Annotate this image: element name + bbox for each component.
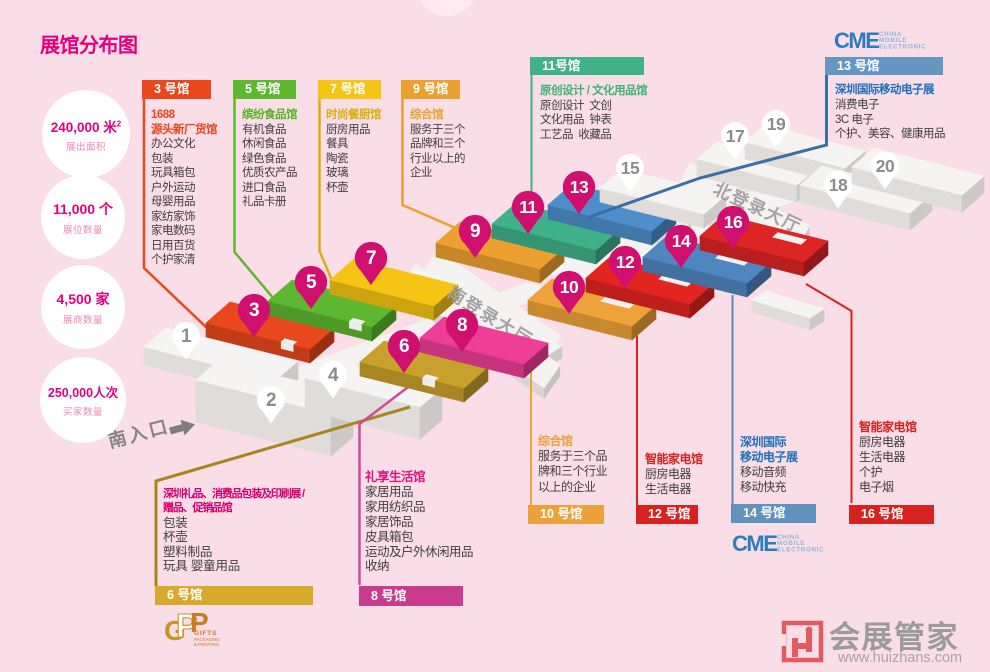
svg-text:13: 13 xyxy=(570,177,589,197)
svg-text:20: 20 xyxy=(876,156,895,176)
svg-text:14: 14 xyxy=(672,231,691,251)
svg-text:8: 8 xyxy=(457,315,467,336)
svg-text:www.huizhans.com: www.huizhans.com xyxy=(837,650,962,666)
svg-text:ELECTRONIC: ELECTRONIC xyxy=(777,546,824,553)
svg-text:2: 2 xyxy=(266,390,276,411)
svg-text:4: 4 xyxy=(328,365,339,386)
svg-text:10: 10 xyxy=(560,277,579,297)
svg-text:5: 5 xyxy=(306,272,317,293)
svg-text:1: 1 xyxy=(181,326,192,347)
svg-text:3: 3 xyxy=(249,300,259,321)
svg-text:CME: CME xyxy=(834,28,879,53)
svg-text:6: 6 xyxy=(399,336,409,357)
svg-text:12: 12 xyxy=(616,252,635,272)
svg-text:7: 7 xyxy=(366,248,376,269)
svg-text:17: 17 xyxy=(726,126,744,146)
svg-text:9: 9 xyxy=(470,221,480,242)
svg-text:GIFTS: GIFTS xyxy=(194,630,217,637)
svg-text:& PRINTING: & PRINTING xyxy=(194,642,220,647)
svg-text:ELECTRONIC: ELECTRONIC xyxy=(879,43,926,50)
svg-text:19: 19 xyxy=(767,114,786,134)
svg-text:18: 18 xyxy=(829,175,848,195)
svg-text:CME: CME xyxy=(732,531,777,556)
svg-text:16: 16 xyxy=(724,212,743,232)
svg-text:11: 11 xyxy=(519,197,537,217)
svg-text:15: 15 xyxy=(621,158,640,178)
